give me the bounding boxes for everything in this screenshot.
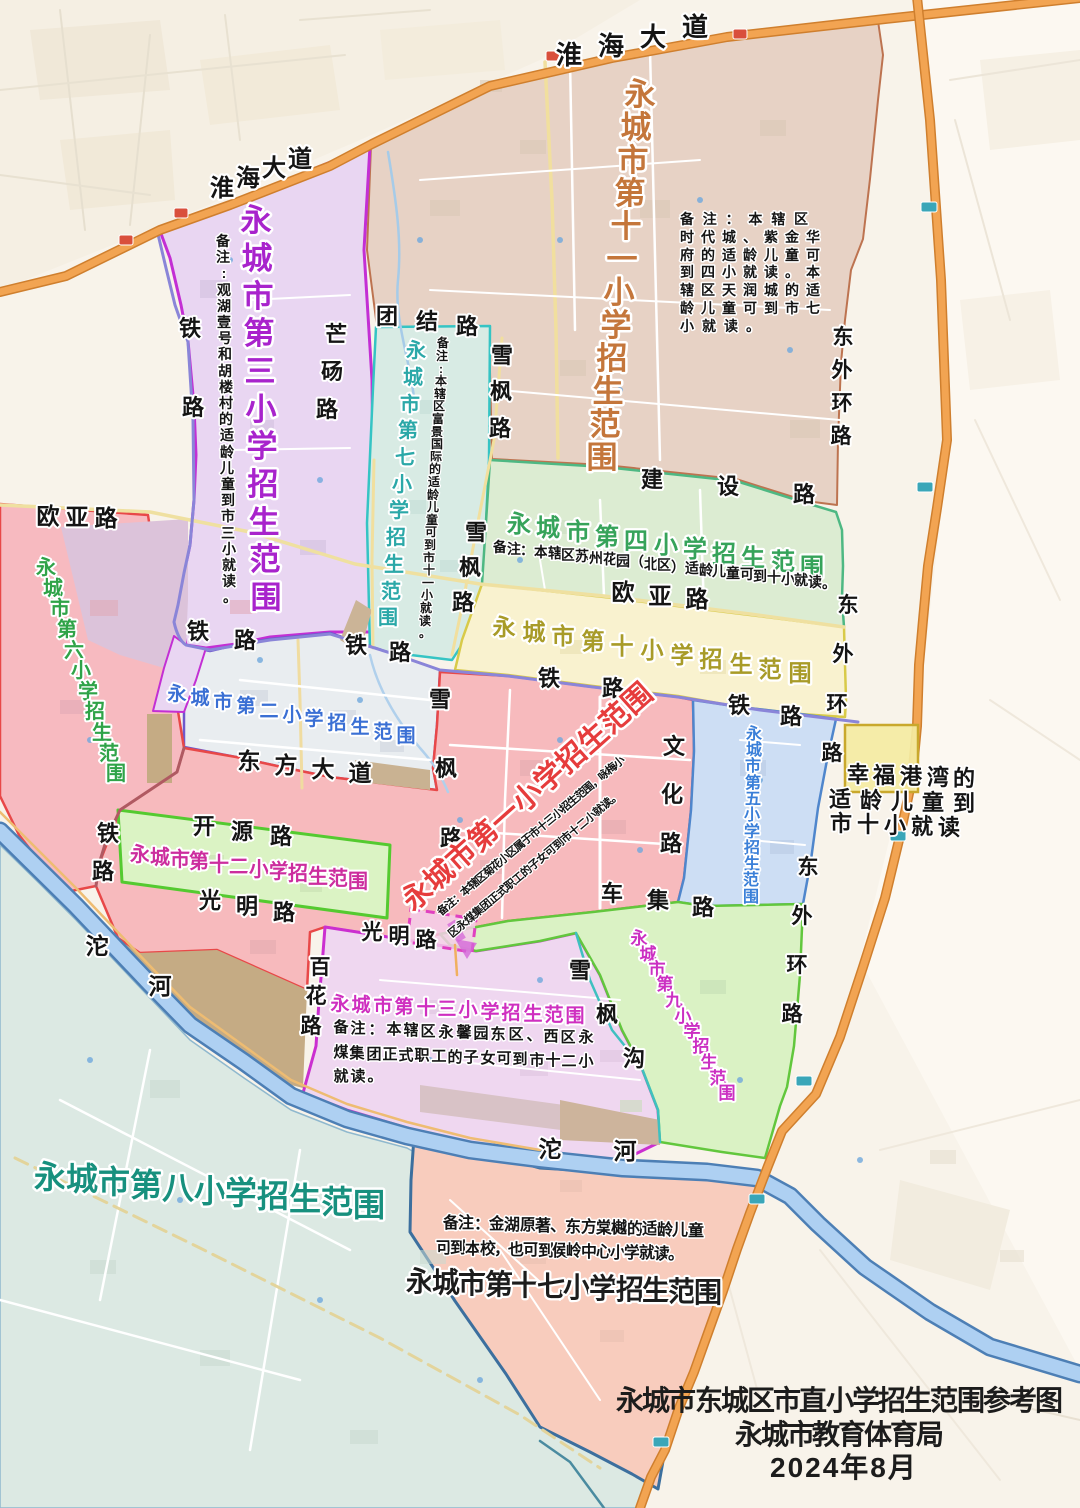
svg-text:路: 路 — [92, 859, 115, 884]
svg-text:国: 国 — [431, 437, 443, 451]
svg-text:雪: 雪 — [491, 343, 513, 368]
svg-text:雪: 雪 — [465, 520, 487, 545]
svg-text:注: 注 — [507, 541, 521, 557]
svg-text:范: 范 — [743, 870, 759, 889]
svg-text:招: 招 — [386, 526, 406, 549]
svg-text:本: 本 — [386, 1020, 401, 1038]
svg-text:2024年8月: 2024年8月 — [770, 1451, 918, 1483]
svg-text:路: 路 — [182, 395, 205, 420]
svg-text:路: 路 — [95, 505, 119, 531]
svg-text:儿: 儿 — [890, 789, 913, 814]
svg-text:枫: 枫 — [596, 1002, 618, 1027]
svg-text:光: 光 — [361, 921, 383, 944]
svg-text:百: 百 — [310, 956, 331, 979]
svg-text:五: 五 — [745, 791, 761, 808]
svg-text:小: 小 — [249, 858, 269, 881]
svg-text:小: 小 — [826, 1385, 854, 1416]
svg-text:小: 小 — [458, 999, 477, 1021]
svg-text:到: 到 — [221, 492, 235, 508]
svg-text:市: 市 — [243, 279, 274, 314]
svg-text:学: 学 — [304, 707, 323, 730]
svg-text:欧: 欧 — [37, 503, 60, 529]
svg-text:小: 小 — [421, 587, 433, 602]
svg-text:园: 园 — [616, 553, 630, 569]
svg-text:欧: 欧 — [612, 579, 635, 605]
svg-text:沱: 沱 — [86, 933, 109, 959]
svg-text:的: 的 — [953, 766, 975, 791]
svg-text:市: 市 — [98, 1164, 130, 1200]
svg-text:路: 路 — [793, 482, 816, 507]
svg-text:市: 市 — [373, 994, 392, 1017]
svg-text:第: 第 — [244, 316, 275, 351]
svg-text:小: 小 — [71, 659, 91, 682]
svg-text:外: 外 — [832, 358, 853, 382]
svg-text:育: 育 — [890, 1418, 918, 1450]
svg-text:永: 永 — [241, 203, 272, 238]
svg-text:童: 童 — [688, 1221, 704, 1240]
svg-text:城: 城 — [190, 686, 209, 709]
svg-text:招: 招 — [248, 467, 279, 502]
svg-text:招: 招 — [501, 1001, 520, 1024]
svg-text:环: 环 — [787, 954, 808, 977]
svg-text:教: 教 — [812, 1419, 840, 1450]
svg-text:明: 明 — [389, 925, 410, 948]
svg-text:范: 范 — [381, 579, 401, 603]
svg-text:。: 。 — [668, 1246, 684, 1263]
svg-text:区: 区 — [420, 1023, 435, 1040]
svg-text:围: 围 — [789, 660, 812, 686]
svg-text:路: 路 — [416, 928, 438, 952]
svg-text:八: 八 — [162, 1170, 195, 1206]
svg-text:和: 和 — [218, 346, 232, 362]
svg-text:儿: 儿 — [426, 500, 439, 514]
svg-text:注: 注 — [350, 1019, 365, 1037]
svg-text:子: 子 — [463, 1049, 478, 1066]
svg-text:学: 学 — [744, 822, 760, 841]
svg-text:区: 区 — [561, 547, 575, 563]
svg-text:市: 市 — [745, 756, 761, 775]
svg-text:路: 路 — [782, 1002, 804, 1026]
svg-text:市: 市 — [221, 508, 235, 524]
svg-text:十: 十 — [511, 1270, 539, 1301]
svg-text:参: 参 — [983, 1384, 1011, 1416]
svg-text:市: 市 — [400, 392, 420, 416]
svg-text:枫: 枫 — [435, 756, 457, 781]
svg-text:二: 二 — [561, 1053, 576, 1070]
svg-text:）: ） — [671, 559, 685, 575]
svg-text:小: 小 — [246, 392, 277, 427]
svg-text:城: 城 — [242, 241, 273, 276]
svg-text:区: 区 — [657, 557, 671, 573]
svg-text:招: 招 — [288, 862, 308, 885]
svg-text:市: 市 — [668, 1384, 696, 1416]
svg-text:就: 就 — [222, 557, 236, 573]
svg-text:小: 小 — [884, 813, 906, 838]
svg-text:东: 东 — [490, 1025, 505, 1043]
svg-text:永: 永 — [625, 77, 656, 112]
svg-text:辖: 辖 — [403, 1021, 418, 1039]
svg-text:建: 建 — [641, 467, 663, 492]
svg-text:生: 生 — [92, 721, 112, 744]
svg-text:幸: 幸 — [847, 762, 869, 787]
svg-text:招: 招 — [744, 838, 760, 857]
svg-text:招: 招 — [257, 1178, 289, 1214]
svg-text:到: 到 — [424, 537, 436, 552]
svg-text:三: 三 — [221, 525, 235, 541]
svg-text:港: 港 — [900, 764, 923, 789]
svg-text:（: （ — [630, 554, 644, 570]
svg-text:道: 道 — [682, 12, 708, 42]
svg-text:到: 到 — [450, 1239, 466, 1257]
svg-text:十: 十 — [423, 562, 435, 577]
svg-text:正: 正 — [382, 1046, 397, 1063]
svg-text:路: 路 — [234, 628, 257, 653]
svg-text:到: 到 — [512, 1051, 527, 1068]
svg-text:到: 到 — [753, 568, 767, 584]
svg-text:海: 海 — [236, 164, 260, 192]
svg-text:范: 范 — [250, 542, 281, 577]
svg-text:市: 市 — [529, 1051, 544, 1069]
svg-text:馨: 馨 — [455, 1023, 472, 1041]
svg-text:区: 区 — [433, 399, 445, 413]
svg-text:楼: 楼 — [219, 379, 233, 395]
svg-text:备: 备 — [215, 233, 231, 249]
svg-text:城: 城 — [523, 619, 546, 645]
svg-text:村: 村 — [219, 395, 233, 411]
svg-text:二: 二 — [229, 856, 249, 878]
svg-text:源: 源 — [231, 819, 253, 844]
svg-text:范: 范 — [668, 1276, 696, 1307]
svg-text:学: 学 — [269, 859, 289, 883]
svg-text:范: 范 — [930, 1385, 958, 1416]
svg-text:招: 招 — [700, 646, 723, 672]
svg-text:路: 路 — [660, 831, 683, 856]
svg-text:永: 永 — [406, 1266, 434, 1297]
svg-text:小: 小 — [744, 806, 760, 824]
svg-text:十: 十 — [611, 633, 634, 659]
svg-text:湖: 湖 — [504, 1216, 520, 1234]
svg-text:枫: 枫 — [459, 555, 481, 580]
svg-text:备: 备 — [492, 539, 508, 555]
svg-text:河: 河 — [149, 973, 172, 999]
svg-text:学: 学 — [589, 1272, 617, 1304]
svg-text:区: 区 — [508, 1026, 523, 1043]
svg-text:本: 本 — [465, 1239, 481, 1258]
svg-text:生: 生 — [904, 1385, 932, 1416]
svg-text:市: 市 — [213, 690, 232, 713]
svg-text:学: 学 — [624, 1243, 640, 1262]
svg-text:七: 七 — [537, 1271, 565, 1302]
svg-text:读: 读 — [938, 815, 960, 840]
svg-text:小: 小 — [222, 541, 236, 557]
svg-text:围: 围 — [353, 1187, 385, 1223]
svg-text:永: 永 — [437, 1023, 454, 1041]
svg-text::: : — [222, 265, 227, 281]
svg-text:西: 西 — [543, 1028, 558, 1045]
svg-text:城: 城 — [642, 1385, 670, 1416]
svg-text:生: 生 — [350, 715, 369, 738]
svg-text:生: 生 — [642, 1275, 670, 1306]
svg-text:生: 生 — [308, 865, 328, 888]
svg-text:大: 大 — [312, 756, 335, 782]
svg-text:小: 小 — [194, 1173, 226, 1209]
svg-text:集: 集 — [348, 1044, 365, 1062]
svg-text:城: 城 — [432, 1267, 460, 1298]
svg-text:生: 生 — [289, 1181, 321, 1217]
svg-text:第: 第 — [189, 849, 209, 873]
svg-text:城: 城 — [43, 576, 63, 600]
svg-text:围: 围 — [396, 725, 415, 747]
svg-text:路: 路 — [273, 900, 296, 925]
svg-text:城: 城 — [621, 110, 652, 145]
svg-text:。: 。 — [419, 626, 431, 640]
svg-text:河: 河 — [614, 1138, 637, 1164]
svg-text:花: 花 — [603, 551, 617, 567]
svg-text:壹: 壹 — [217, 314, 231, 330]
svg-text:路: 路 — [301, 1014, 323, 1038]
svg-text:学: 学 — [852, 1384, 880, 1416]
svg-text:永: 永 — [129, 842, 150, 866]
svg-text:四: 四 — [624, 528, 648, 555]
svg-text:市: 市 — [618, 143, 649, 178]
svg-text:第: 第 — [485, 1268, 513, 1300]
svg-text:小: 小 — [282, 704, 301, 726]
svg-text:结: 结 — [416, 309, 438, 334]
svg-text:围: 围 — [251, 580, 282, 615]
svg-text:煤: 煤 — [333, 1044, 348, 1061]
svg-text:城: 城 — [403, 365, 423, 389]
svg-text:学: 学 — [225, 1175, 257, 1211]
svg-text:大: 大 — [640, 22, 666, 52]
svg-text:就: 就 — [911, 814, 933, 839]
svg-text:招: 招 — [597, 341, 628, 376]
svg-text:第: 第 — [236, 694, 255, 717]
svg-text:路: 路 — [822, 741, 844, 765]
svg-text:第: 第 — [615, 176, 646, 211]
svg-text:招: 招 — [616, 1274, 644, 1305]
svg-text:城: 城 — [721, 1385, 749, 1416]
svg-text:永: 永 — [507, 511, 531, 538]
svg-text:小: 小 — [641, 637, 664, 663]
svg-text:女: 女 — [480, 1049, 495, 1067]
svg-text:东: 东 — [838, 593, 859, 617]
svg-text:海: 海 — [598, 31, 624, 61]
svg-text:城: 城 — [150, 845, 170, 869]
svg-text:永: 永 — [745, 724, 762, 743]
svg-text:。: 。 — [822, 575, 836, 591]
svg-text:生: 生 — [744, 854, 760, 873]
svg-text:儿: 儿 — [671, 1221, 688, 1239]
svg-text:沱: 沱 — [539, 1136, 562, 1162]
svg-text:学: 学 — [389, 498, 409, 522]
svg-text:十: 十 — [857, 812, 879, 837]
svg-text:三: 三 — [437, 999, 456, 1020]
svg-text:围: 围 — [957, 1385, 985, 1416]
svg-text:适: 适 — [642, 1220, 658, 1238]
svg-text:范: 范 — [590, 407, 621, 442]
svg-text:范: 范 — [328, 866, 348, 890]
svg-text:围: 围 — [565, 1005, 584, 1027]
svg-text:路: 路 — [780, 704, 803, 729]
svg-text:永: 永 — [329, 992, 350, 1015]
svg-text:路: 路 — [316, 397, 339, 422]
svg-text:市: 市 — [170, 847, 190, 871]
svg-text:东: 东 — [238, 748, 261, 774]
svg-text:车: 车 — [601, 881, 623, 906]
svg-text:沟: 沟 — [623, 1046, 645, 1071]
svg-text:亚: 亚 — [66, 504, 89, 530]
svg-text:图: 图 — [1035, 1385, 1063, 1416]
svg-text:亚: 亚 — [649, 583, 672, 609]
svg-text:范: 范 — [759, 656, 782, 682]
svg-text:围: 围 — [719, 1084, 736, 1103]
svg-text:福: 福 — [872, 763, 895, 788]
svg-text:永: 永 — [493, 614, 516, 640]
svg-text:市: 市 — [458, 1267, 486, 1299]
svg-text:铁: 铁 — [187, 619, 209, 644]
svg-text:城: 城 — [761, 1419, 789, 1450]
svg-text:学: 学 — [247, 429, 278, 464]
svg-text:的: 的 — [447, 1048, 462, 1066]
svg-text:儿: 儿 — [711, 563, 726, 579]
svg-text:童: 童 — [726, 565, 740, 581]
svg-text:可: 可 — [425, 525, 437, 539]
svg-text:的: 的 — [219, 411, 233, 427]
svg-text:外: 外 — [833, 642, 854, 666]
svg-text:范: 范 — [373, 720, 392, 743]
svg-text:小: 小 — [578, 1053, 593, 1070]
svg-text:雪: 雪 — [429, 687, 451, 712]
svg-text:一: 一 — [607, 242, 638, 277]
svg-text:枫: 枫 — [490, 379, 512, 404]
svg-text:路: 路 — [686, 586, 710, 612]
svg-text:六: 六 — [64, 639, 84, 662]
svg-text:永: 永 — [35, 555, 56, 579]
svg-text:注: 注 — [458, 1213, 474, 1232]
svg-text:第: 第 — [745, 773, 761, 792]
svg-text:生: 生 — [730, 651, 753, 677]
svg-text:胡: 胡 — [218, 363, 232, 379]
svg-text:观: 观 — [217, 282, 231, 298]
svg-text:式: 式 — [398, 1046, 413, 1064]
svg-text:砀: 砀 — [321, 359, 343, 384]
svg-text:生: 生 — [249, 505, 280, 540]
svg-text:苏: 苏 — [575, 548, 589, 564]
svg-text:到: 到 — [953, 791, 975, 816]
svg-text:范: 范 — [321, 1184, 353, 1220]
svg-text:园: 园 — [473, 1025, 488, 1042]
svg-text:的: 的 — [429, 461, 441, 476]
svg-text:辖: 辖 — [548, 545, 562, 561]
svg-text:区: 区 — [747, 1385, 775, 1416]
svg-text:范: 范 — [544, 1003, 563, 1026]
svg-text:二: 二 — [259, 701, 278, 722]
svg-text:大: 大 — [262, 155, 286, 182]
svg-text:铁: 铁 — [179, 316, 201, 341]
svg-text:小: 小 — [604, 275, 635, 310]
svg-text:铁: 铁 — [728, 693, 750, 718]
svg-text:方: 方 — [275, 752, 298, 778]
svg-text:适: 适 — [685, 560, 699, 576]
svg-text:花: 花 — [306, 984, 327, 1008]
svg-text:环: 环 — [832, 392, 853, 415]
svg-text:东: 东 — [833, 325, 854, 349]
svg-text:龄: 龄 — [860, 788, 883, 813]
svg-text:学: 学 — [78, 679, 98, 703]
svg-text:道: 道 — [288, 145, 312, 173]
svg-text:适: 适 — [428, 474, 440, 489]
svg-text:开: 开 — [193, 814, 215, 839]
svg-text:童: 童 — [922, 790, 944, 815]
svg-text:原: 原 — [520, 1216, 536, 1234]
svg-text:童: 童 — [221, 476, 235, 492]
svg-text:湖: 湖 — [217, 298, 231, 314]
svg-text:岭: 岭 — [566, 1241, 582, 1260]
svg-text:永: 永 — [577, 1028, 594, 1046]
svg-text:：: ： — [520, 542, 534, 558]
svg-text:市: 市 — [830, 811, 852, 836]
svg-text:路: 路 — [489, 416, 512, 441]
svg-text:北: 北 — [644, 556, 658, 572]
svg-text:学: 学 — [671, 642, 694, 668]
svg-text:设: 设 — [717, 474, 739, 499]
svg-text:围: 围 — [743, 888, 759, 906]
svg-text:号: 号 — [218, 330, 232, 346]
svg-text:学: 学 — [683, 535, 707, 563]
svg-text:路: 路 — [389, 640, 412, 665]
svg-text:路: 路 — [270, 824, 293, 849]
svg-text:淮: 淮 — [556, 40, 582, 70]
svg-text:本: 本 — [534, 544, 549, 560]
svg-text:永: 永 — [405, 338, 426, 362]
svg-text:工: 工 — [431, 1048, 446, 1065]
svg-text:学: 学 — [601, 308, 632, 343]
svg-text:外: 外 — [792, 904, 813, 928]
svg-text:小: 小 — [654, 532, 678, 559]
svg-text:第: 第 — [394, 995, 413, 1018]
svg-text:樾: 樾 — [611, 1218, 628, 1237]
svg-text:光: 光 — [198, 888, 221, 913]
svg-text:路: 路 — [456, 314, 479, 339]
svg-text:生: 生 — [593, 374, 624, 409]
svg-text:路: 路 — [452, 590, 475, 615]
svg-text:东: 东 — [695, 1384, 723, 1416]
svg-text:考: 考 — [1009, 1385, 1037, 1416]
svg-text:第: 第 — [398, 418, 418, 442]
svg-text:永: 永 — [616, 1385, 644, 1416]
svg-text:十: 十 — [545, 1051, 560, 1069]
svg-text:招: 招 — [327, 711, 346, 734]
svg-text:局: 局 — [916, 1419, 944, 1450]
svg-text:富: 富 — [432, 411, 444, 426]
svg-text:读: 读 — [222, 573, 236, 589]
svg-text:市: 市 — [50, 596, 70, 620]
svg-text:围: 围 — [694, 1277, 722, 1308]
svg-text:适: 适 — [829, 787, 851, 812]
svg-text:东: 东 — [565, 1217, 581, 1236]
svg-text:范: 范 — [99, 741, 119, 765]
svg-text:第: 第 — [130, 1167, 162, 1203]
svg-text:铁: 铁 — [538, 666, 560, 691]
svg-text:本: 本 — [435, 373, 447, 388]
svg-text:市: 市 — [566, 518, 590, 546]
svg-text:读: 读 — [350, 1067, 365, 1085]
svg-text:方: 方 — [581, 1217, 597, 1236]
svg-text:适: 适 — [220, 427, 234, 443]
svg-text:学: 学 — [480, 1000, 499, 1023]
svg-text:第: 第 — [57, 617, 77, 641]
svg-text:区: 区 — [560, 1029, 575, 1046]
